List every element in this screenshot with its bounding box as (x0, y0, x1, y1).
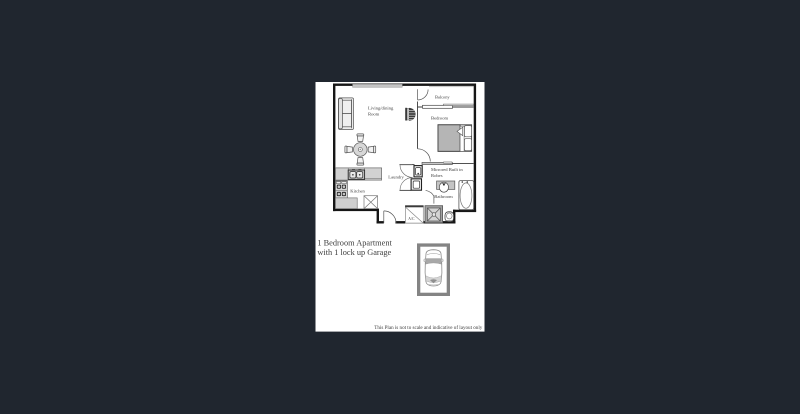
svg-text:Laundry: Laundry (388, 175, 404, 180)
svg-text:with 1 lock up Garage: with 1 lock up Garage (317, 247, 391, 257)
svg-text:Mirrored Built in: Mirrored Built in (431, 167, 463, 172)
svg-text:Balcony: Balcony (435, 95, 450, 100)
svg-text:Bathroom: Bathroom (434, 194, 453, 199)
svg-text:Bedroom: Bedroom (431, 116, 449, 121)
svg-text:This Plan is not to scale and: This Plan is not to scale and indicative… (374, 326, 483, 331)
svg-text:1 Bedroom Apartment: 1 Bedroom Apartment (317, 238, 392, 248)
svg-text:Living/dining: Living/dining (368, 105, 394, 110)
svg-text:Robes: Robes (431, 173, 443, 178)
svg-text:Kitchen: Kitchen (350, 188, 365, 193)
svg-text:A/C: A/C (408, 217, 415, 221)
svg-text:Room: Room (368, 111, 380, 116)
